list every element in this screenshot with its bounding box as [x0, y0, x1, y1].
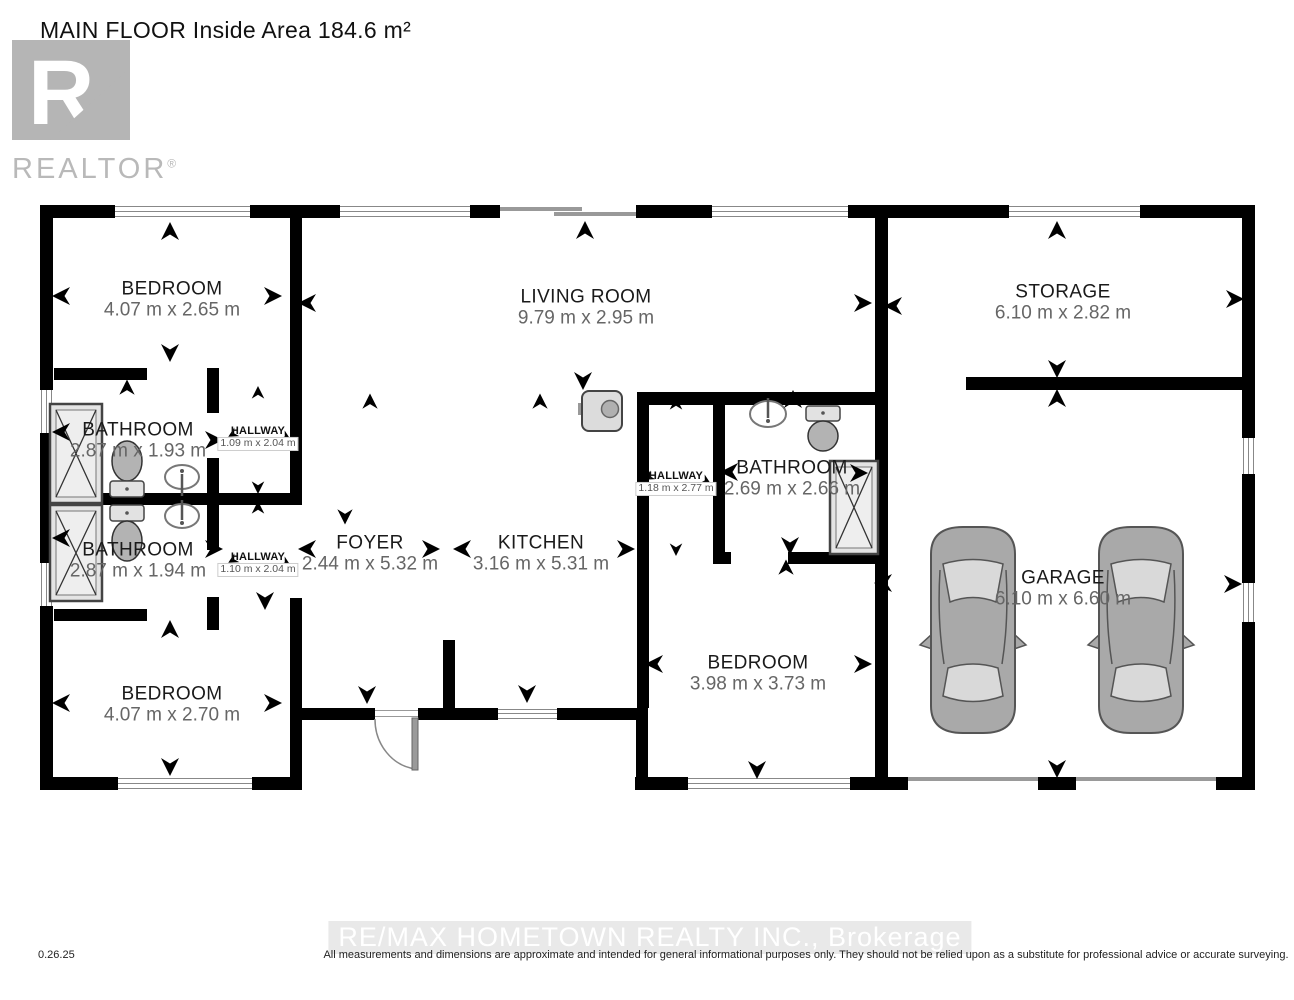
- window-icon: [1009, 205, 1140, 218]
- room-label-garage: GARAGE6.10 m x 6.60 m: [995, 568, 1131, 611]
- sink-icon: [165, 465, 199, 496]
- floor-plan-drawing: [0, 0, 1294, 1000]
- realtor-logo: R REALTOR®: [12, 40, 152, 186]
- room-label-foyer: FOYER2.44 m x 5.32 m: [302, 533, 438, 576]
- car-icon: [920, 527, 1026, 733]
- floor-plan-page: MAIN FLOOR Inside Area 184.6 m² R REALTO…: [0, 0, 1294, 1000]
- appliance-icon: [578, 391, 622, 431]
- realtor-logo-text: REALTOR®: [12, 153, 152, 186]
- room-label-bedroom-2: BEDROOM4.07 m x 2.70 m: [104, 684, 240, 727]
- realtor-logo-icon: R: [12, 40, 137, 144]
- window-icon: [1242, 583, 1255, 622]
- window-icon: [712, 205, 848, 218]
- window-icon: [688, 777, 850, 790]
- room-label-bedroom-1: BEDROOM4.07 m x 2.65 m: [104, 279, 240, 322]
- window-icon: [1242, 438, 1255, 474]
- window-icon: [340, 205, 470, 218]
- room-label-hallway-1: HALLWAY1.09 m x 2.04 m: [217, 425, 298, 451]
- garage-door-icon: [1076, 777, 1216, 790]
- window-icon: [498, 708, 557, 720]
- room-label-bathroom-1: BATHROOM2.87 m x 1.93 m: [70, 420, 206, 463]
- room-label-bathroom-3: BATHROOM2.69 m x 2.66 m: [724, 458, 860, 501]
- garage-door-icon: [908, 777, 1038, 790]
- room-label-hallway-3: HALLWAY1.18 m x 2.77 m: [635, 470, 716, 496]
- room-label-living-room: LIVING ROOM9.79 m x 2.95 m: [518, 287, 654, 330]
- window-icon: [118, 777, 252, 790]
- plan-date: 0.26.25: [38, 949, 75, 961]
- room-label-hallway-2: HALLWAY1.10 m x 2.04 m: [217, 551, 298, 577]
- toilet-icon: [806, 406, 840, 451]
- room-label-bedroom-3: BEDROOM3.98 m x 3.73 m: [690, 653, 826, 696]
- room-label-bathroom-2: BATHROOM2.87 m x 1.94 m: [70, 540, 206, 583]
- disclaimer-text: All measurements and dimensions are appr…: [323, 949, 1288, 961]
- room-label-kitchen: KITCHEN3.16 m x 5.31 m: [473, 533, 609, 576]
- entry-door-icon: [375, 710, 418, 770]
- window-icon: [115, 205, 250, 218]
- sliding-door-icon: [500, 205, 636, 218]
- car-icon: [1088, 527, 1194, 733]
- room-label-storage: STORAGE6.10 m x 2.82 m: [995, 282, 1131, 325]
